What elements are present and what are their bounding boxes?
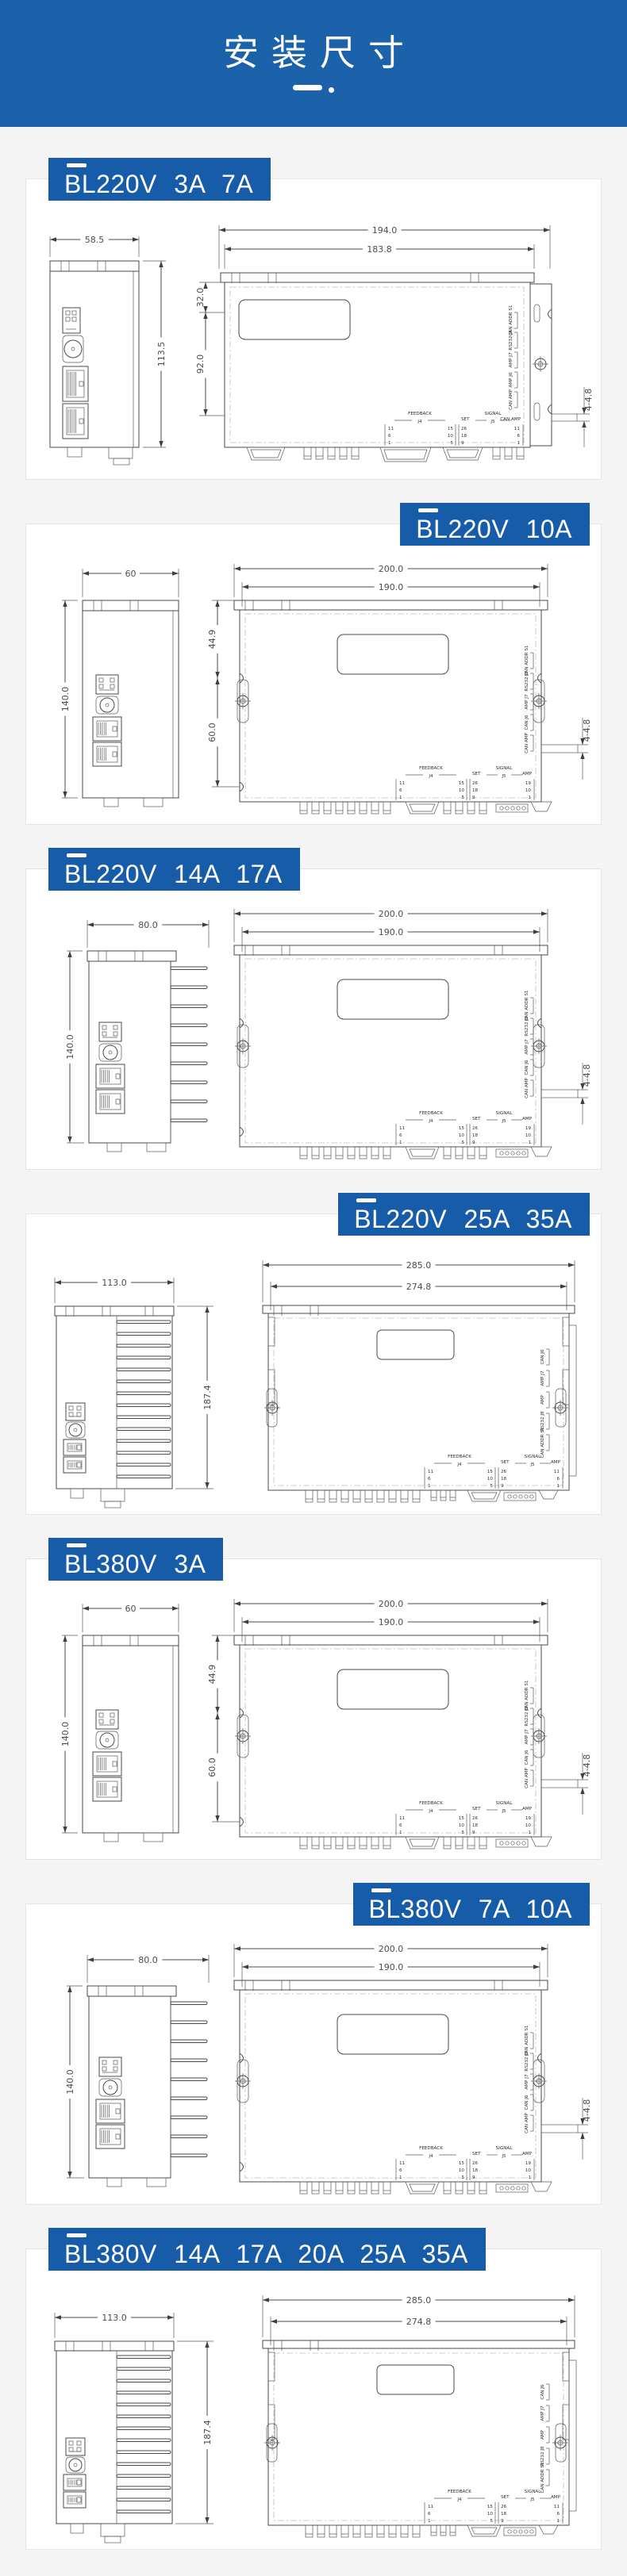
svg-text:5: 5 <box>490 1484 493 1489</box>
svg-text:RS232 J8: RS232 J8 <box>525 1706 529 1727</box>
svg-text:SIGNAL: SIGNAL <box>525 2490 542 2494</box>
svg-text:183.8: 183.8 <box>367 244 392 255</box>
svg-text:1: 1 <box>428 1484 431 1489</box>
svg-text:26: 26 <box>472 2161 479 2166</box>
section-label: BL220V 25A 35A <box>338 1193 590 1236</box>
svg-text:10: 10 <box>459 1823 465 1828</box>
svg-text:CAN AMP: CAN AMP <box>500 417 521 422</box>
svg-text:10: 10 <box>525 1133 532 1138</box>
svg-text:26: 26 <box>501 2505 507 2509</box>
svg-text:SIGNAL: SIGNAL <box>496 1111 514 1116</box>
svg-text:200.0: 200.0 <box>379 909 404 919</box>
svg-text:1: 1 <box>399 1830 402 1835</box>
section-label: BL220V 14A 17A <box>48 848 300 891</box>
svg-text:274.8: 274.8 <box>406 2317 432 2327</box>
svg-text:4-4.8: 4-4.8 <box>582 719 592 742</box>
svg-text:44.9: 44.9 <box>207 630 217 650</box>
svg-text:AMP J7: AMP J7 <box>525 1039 529 1054</box>
svg-text:200.0: 200.0 <box>379 1599 404 1609</box>
svg-text:285.0: 285.0 <box>406 1260 432 1271</box>
svg-text:18: 18 <box>501 2512 507 2517</box>
section-bl220v-25a-35a: BL220V 25A 35A 113.0187.4285.0274.8CAN J… <box>25 1213 602 1515</box>
svg-text:1: 1 <box>528 1140 531 1145</box>
svg-text:J4: J4 <box>428 774 433 779</box>
svg-text:AMP J7: AMP J7 <box>509 352 514 367</box>
section-bl380v-14a-35a: BL380V 14A 17A 20A 25A 35A 113.0187.4285… <box>25 2248 602 2550</box>
svg-text:10: 10 <box>448 434 454 439</box>
svg-text:11: 11 <box>399 2161 406 2166</box>
label-dash-icon <box>418 508 438 512</box>
svg-text:SET: SET <box>501 2495 510 2500</box>
svg-text:6: 6 <box>517 434 520 439</box>
svg-text:5: 5 <box>461 1830 464 1835</box>
svg-text:J5: J5 <box>529 1462 535 1467</box>
svg-text:190.0: 190.0 <box>379 1617 404 1627</box>
svg-text:1: 1 <box>399 2175 402 2180</box>
svg-text:26: 26 <box>472 1816 479 1821</box>
section-label-text: BL380V 7A 10A <box>369 1895 572 1923</box>
svg-text:58.5: 58.5 <box>85 235 105 245</box>
svg-text:60: 60 <box>125 1604 137 1614</box>
svg-text:113.0: 113.0 <box>102 2313 127 2323</box>
svg-text:4-4.8: 4-4.8 <box>582 1064 592 1087</box>
svg-text:CAN J6: CAN J6 <box>540 1349 545 1364</box>
svg-text:5: 5 <box>461 795 464 800</box>
svg-text:1: 1 <box>428 2519 431 2524</box>
svg-text:CAN AMP: CAN AMP <box>525 1768 529 1788</box>
svg-text:26: 26 <box>461 427 467 431</box>
svg-text:AMP J7: AMP J7 <box>540 2405 545 2421</box>
svg-text:1: 1 <box>517 441 520 446</box>
svg-text:J5: J5 <box>490 420 495 424</box>
svg-text:9: 9 <box>472 2175 475 2180</box>
svg-text:4-4.8: 4-4.8 <box>583 389 594 411</box>
svg-text:10: 10 <box>487 1477 494 1482</box>
svg-text:RS232 J8: RS232 J8 <box>525 1016 529 1037</box>
svg-text:4-4.8: 4-4.8 <box>582 1754 592 1777</box>
svg-text:6: 6 <box>399 1823 402 1828</box>
svg-text:AMP: AMP <box>551 1460 561 1465</box>
svg-text:1: 1 <box>399 795 402 800</box>
section-label: BL220V 10A <box>400 503 590 546</box>
svg-text:19: 19 <box>525 1126 532 1131</box>
label-dash-icon <box>67 2233 87 2237</box>
svg-text:J5: J5 <box>501 1809 506 1814</box>
svg-text:RS232 J8: RS232 J8 <box>525 2051 529 2072</box>
title-dash-icon <box>293 85 322 90</box>
svg-text:1: 1 <box>388 441 391 446</box>
svg-text:J4: J4 <box>456 2497 462 2502</box>
svg-text:CAN J6: CAN J6 <box>540 2384 545 2399</box>
svg-text:11: 11 <box>399 1126 406 1131</box>
sections-list: BL220V 3A 7A 58.5113.5194.0183.832.092.0… <box>0 178 627 2574</box>
section-bl380v-7a-10a: BL380V 7A 10A 80.0140.0200.0190.04-4.8CA… <box>25 1903 602 2205</box>
section-label: BL380V 14A 17A 20A 25A 35A <box>48 2228 486 2271</box>
title-dot-icon <box>329 87 334 93</box>
svg-text:CAN J6: CAN J6 <box>525 1750 529 1765</box>
technical-drawing-bl220v-10a: 60140.0200.0190.044.960.04-4.8CAN ADDR S… <box>26 524 601 822</box>
svg-text:FEEDBACK: FEEDBACK <box>419 1801 443 1806</box>
svg-text:FEEDBACK: FEEDBACK <box>419 2146 443 2151</box>
section-bl220v-14a-17a: BL220V 14A 17A 80.0140.0200.0190.04-4.8C… <box>25 868 602 1170</box>
svg-text:18: 18 <box>501 1477 507 1482</box>
svg-text:60: 60 <box>125 569 137 579</box>
section-label-text: BL220V 14A 17A <box>64 860 283 888</box>
svg-text:10: 10 <box>487 2512 494 2517</box>
svg-text:SIGNAL: SIGNAL <box>496 1801 514 1806</box>
svg-text:CAN AMP: CAN AMP <box>525 733 529 753</box>
svg-text:J4: J4 <box>417 420 422 424</box>
svg-text:SIGNAL: SIGNAL <box>496 766 514 771</box>
svg-text:J5: J5 <box>501 2154 506 2159</box>
svg-text:9: 9 <box>501 2519 504 2524</box>
svg-text:6: 6 <box>428 1477 431 1482</box>
svg-text:CAN AMP: CAN AMP <box>525 1078 529 1098</box>
svg-text:CAN ADDR S1: CAN ADDR S1 <box>540 1427 545 1458</box>
svg-text:10: 10 <box>459 1133 465 1138</box>
svg-text:5: 5 <box>461 1140 464 1145</box>
technical-drawing-bl380v-7a-10a: 80.0140.0200.0190.04-4.8CAN ADDR S1RS232… <box>26 1904 601 2202</box>
svg-text:44.9: 44.9 <box>207 1665 217 1685</box>
svg-text:J4: J4 <box>428 1809 433 1814</box>
svg-text:32.0: 32.0 <box>195 288 206 308</box>
svg-text:AMP J7: AMP J7 <box>525 1729 529 1744</box>
svg-text:9: 9 <box>461 441 464 446</box>
svg-text:11: 11 <box>554 2505 560 2509</box>
technical-drawing-bl380v-3a: 60140.0200.0190.044.960.04-4.8CAN ADDR S… <box>26 1559 601 1857</box>
svg-text:9: 9 <box>501 1484 504 1489</box>
svg-text:SET: SET <box>472 772 481 776</box>
svg-text:19: 19 <box>525 1816 532 1821</box>
svg-text:CAN AMP: CAN AMP <box>509 389 514 410</box>
svg-text:60.0: 60.0 <box>207 723 217 742</box>
svg-text:194.0: 194.0 <box>372 225 398 236</box>
section-bl220v-3a-7a: BL220V 3A 7A 58.5113.5194.0183.832.092.0… <box>25 178 602 480</box>
svg-text:15: 15 <box>487 2505 494 2509</box>
technical-drawing-bl380v-14a-35a: 113.0187.4285.0274.8CAN J6AMP J7AMPRS232… <box>26 2249 601 2547</box>
svg-text:AMP J7: AMP J7 <box>525 2074 529 2089</box>
section-label-text: BL220V 25A 35A <box>354 1205 572 1233</box>
svg-text:140.0: 140.0 <box>60 687 71 712</box>
svg-text:19: 19 <box>525 2161 532 2166</box>
svg-text:60.0: 60.0 <box>207 1758 217 1777</box>
svg-text:CAN J6: CAN J6 <box>525 1060 529 1075</box>
section-label-text: BL220V 3A 7A <box>64 170 253 198</box>
section-bl220v-10a: BL220V 10A 60140.0200.0190.044.960.04-4.… <box>25 523 602 825</box>
svg-text:200.0: 200.0 <box>379 564 404 574</box>
svg-text:11: 11 <box>399 781 406 786</box>
svg-text:6: 6 <box>399 2168 402 2173</box>
svg-text:J4: J4 <box>428 2154 433 2159</box>
svg-text:140.0: 140.0 <box>65 1034 75 1060</box>
svg-text:4-4.8: 4-4.8 <box>582 2099 592 2122</box>
svg-text:FEEDBACK: FEEDBACK <box>408 412 432 416</box>
svg-text:18: 18 <box>472 788 479 793</box>
svg-text:285.0: 285.0 <box>406 2295 432 2306</box>
svg-text:18: 18 <box>472 1823 479 1828</box>
svg-text:9: 9 <box>472 1830 475 1835</box>
svg-text:J4: J4 <box>456 1462 462 1467</box>
svg-text:1: 1 <box>528 795 531 800</box>
section-label-text: BL380V 14A 17A 20A 25A 35A <box>64 2240 468 2268</box>
label-dash-icon <box>67 853 87 857</box>
svg-text:140.0: 140.0 <box>60 1722 71 1747</box>
svg-text:1: 1 <box>399 1140 402 1145</box>
svg-text:15: 15 <box>487 1470 494 1474</box>
svg-text:FEEDBACK: FEEDBACK <box>419 1111 443 1116</box>
svg-text:SIGNAL: SIGNAL <box>496 2146 514 2151</box>
svg-text:AMP J7: AMP J7 <box>525 694 529 709</box>
svg-text:9: 9 <box>472 795 475 800</box>
svg-text:1: 1 <box>556 1484 560 1489</box>
svg-text:AMP J6: AMP J6 <box>509 372 514 387</box>
svg-text:10: 10 <box>525 1823 532 1828</box>
svg-text:11: 11 <box>388 427 394 431</box>
svg-text:11: 11 <box>428 1470 434 1474</box>
svg-text:26: 26 <box>472 781 479 786</box>
svg-text:AMP: AMP <box>540 1394 545 1405</box>
technical-drawing-bl220v-3a-7a: 58.5113.5194.0183.832.092.04-4.8CAN ADDR… <box>26 179 601 477</box>
svg-text:187.4: 187.4 <box>202 2420 213 2445</box>
svg-text:AMP: AMP <box>522 772 533 776</box>
svg-text:6: 6 <box>399 1133 402 1138</box>
svg-text:15: 15 <box>459 1126 465 1131</box>
label-dash-icon <box>356 1198 376 1202</box>
section-label-text: BL220V 10A <box>416 515 572 543</box>
svg-text:18: 18 <box>472 2168 479 2173</box>
svg-text:SET: SET <box>501 1460 510 1465</box>
svg-text:80.0: 80.0 <box>138 920 158 930</box>
section-label: BL380V 3A <box>48 1538 223 1581</box>
svg-text:5: 5 <box>450 441 453 446</box>
svg-text:10: 10 <box>459 2168 465 2173</box>
section-label-text: BL380V 3A <box>64 1550 206 1578</box>
svg-text:140.0: 140.0 <box>65 2069 75 2095</box>
technical-drawing-bl220v-14a-17a: 80.0140.0200.0190.04-4.8CAN ADDR S1RS232… <box>26 869 601 1167</box>
svg-text:1: 1 <box>528 1830 531 1835</box>
title-underline <box>293 83 334 93</box>
svg-text:SIGNAL: SIGNAL <box>485 412 502 416</box>
svg-text:1: 1 <box>528 2175 531 2180</box>
svg-text:SET: SET <box>472 1117 481 1121</box>
svg-text:15: 15 <box>459 1816 465 1821</box>
svg-text:AMP: AMP <box>540 2429 545 2440</box>
svg-text:15: 15 <box>459 781 465 786</box>
svg-text:5: 5 <box>461 2175 464 2180</box>
svg-text:AMP J7: AMP J7 <box>540 1370 545 1386</box>
svg-text:19: 19 <box>525 781 532 786</box>
svg-text:274.8: 274.8 <box>406 1282 432 1292</box>
svg-text:6: 6 <box>399 788 402 793</box>
svg-text:10: 10 <box>459 788 465 793</box>
label-dash-icon <box>67 1543 87 1547</box>
svg-text:113.0: 113.0 <box>102 1278 127 1288</box>
svg-text:J4: J4 <box>428 1119 433 1124</box>
svg-text:18: 18 <box>461 434 467 439</box>
section-label: BL220V 3A 7A <box>48 158 271 201</box>
page-header: 安装尺寸 <box>0 0 627 127</box>
svg-text:26: 26 <box>501 1470 507 1474</box>
svg-text:SET: SET <box>461 417 470 422</box>
svg-text:190.0: 190.0 <box>379 582 404 592</box>
label-dash-icon <box>371 1888 391 1892</box>
svg-text:SIGNAL: SIGNAL <box>525 1455 542 1459</box>
svg-text:J5: J5 <box>529 2497 535 2502</box>
svg-text:26: 26 <box>472 1126 479 1131</box>
svg-text:15: 15 <box>448 427 454 431</box>
svg-text:CAN J6: CAN J6 <box>525 715 529 730</box>
svg-text:80.0: 80.0 <box>138 1955 158 1965</box>
svg-text:1: 1 <box>556 2519 560 2524</box>
section-bl380v-3a: BL380V 3A 60140.0200.0190.044.960.04-4.8… <box>25 1558 602 1860</box>
svg-text:CAN J6: CAN J6 <box>525 2095 529 2110</box>
svg-text:15: 15 <box>459 2161 465 2166</box>
svg-text:10: 10 <box>525 2168 532 2173</box>
svg-text:FEEDBACK: FEEDBACK <box>448 1455 471 1459</box>
svg-text:187.4: 187.4 <box>202 1385 213 1410</box>
svg-text:92.0: 92.0 <box>195 355 206 374</box>
svg-text:RS232 J8: RS232 J8 <box>509 330 514 351</box>
svg-text:6: 6 <box>556 1477 560 1482</box>
svg-text:CAN AMP: CAN AMP <box>525 2113 529 2133</box>
svg-text:190.0: 190.0 <box>379 1962 404 1972</box>
svg-text:RS232 J8: RS232 J8 <box>525 671 529 692</box>
svg-text:6: 6 <box>556 2512 560 2517</box>
svg-text:J5: J5 <box>501 1119 506 1124</box>
svg-text:SET: SET <box>472 2152 481 2156</box>
svg-text:AMP: AMP <box>522 1807 533 1811</box>
svg-text:18: 18 <box>472 1133 479 1138</box>
section-label: BL380V 7A 10A <box>353 1883 590 1926</box>
svg-text:9: 9 <box>472 1140 475 1145</box>
svg-text:FEEDBACK: FEEDBACK <box>419 766 443 771</box>
svg-text:AMP: AMP <box>522 1117 533 1121</box>
svg-text:J5: J5 <box>501 774 506 779</box>
svg-text:10: 10 <box>525 788 532 793</box>
label-dash-icon <box>67 163 87 167</box>
svg-text:6: 6 <box>428 2512 431 2517</box>
svg-text:11: 11 <box>554 1470 560 1474</box>
svg-text:11: 11 <box>514 427 521 431</box>
svg-text:6: 6 <box>388 434 391 439</box>
svg-text:SET: SET <box>472 1807 481 1811</box>
svg-text:11: 11 <box>399 1816 406 1821</box>
svg-text:11: 11 <box>428 2505 434 2509</box>
svg-text:AMP: AMP <box>551 2495 561 2500</box>
page-title: 安装尺寸 <box>210 35 417 71</box>
svg-text:FEEDBACK: FEEDBACK <box>448 2490 471 2494</box>
svg-text:AMP: AMP <box>522 2152 533 2156</box>
svg-text:113.5: 113.5 <box>156 342 167 367</box>
svg-text:200.0: 200.0 <box>379 1944 404 1954</box>
svg-text:CAN ADDR S1: CAN ADDR S1 <box>540 2462 545 2493</box>
svg-text:190.0: 190.0 <box>379 927 404 937</box>
svg-text:5: 5 <box>490 2519 493 2524</box>
technical-drawing-bl220v-25a-35a: 113.0187.4285.0274.8CAN J6AMP J7AMPRS232… <box>26 1214 601 1512</box>
